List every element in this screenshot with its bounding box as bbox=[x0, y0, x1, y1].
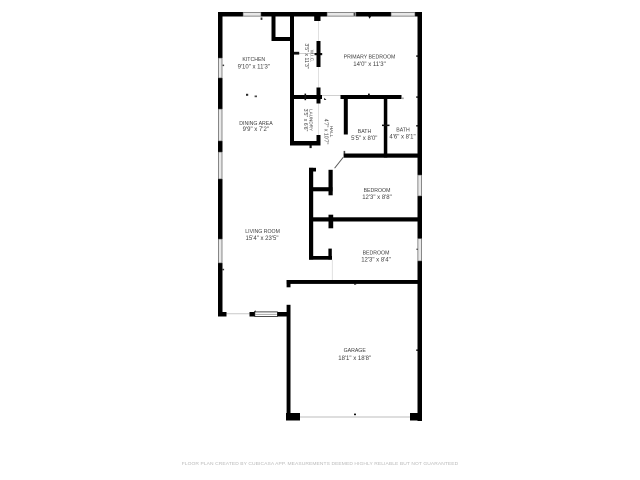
svg-text:9'10" x 11'3": 9'10" x 11'3" bbox=[238, 65, 270, 71]
svg-text:LAUNDRY: LAUNDRY bbox=[308, 109, 313, 131]
svg-text:18'1" x 18'8": 18'1" x 18'8" bbox=[338, 356, 371, 362]
svg-text:5'5" x 8'0": 5'5" x 8'0" bbox=[351, 136, 377, 142]
svg-text:12'3" x 8'8": 12'3" x 8'8" bbox=[362, 195, 392, 201]
svg-text:4'6" x 8'1": 4'6" x 8'1" bbox=[389, 135, 415, 141]
svg-text:LIVING ROOM: LIVING ROOM bbox=[245, 229, 280, 235]
svg-text:HALL: HALL bbox=[329, 126, 334, 138]
svg-text:3'5" x 6'6": 3'5" x 6'6" bbox=[302, 109, 308, 132]
svg-text:4'7" x 10'7": 4'7" x 10'7" bbox=[323, 119, 329, 145]
svg-text:BEDROOM: BEDROOM bbox=[363, 251, 390, 257]
svg-text:GARAGE: GARAGE bbox=[344, 348, 367, 354]
svg-text:KITCHEN: KITCHEN bbox=[242, 57, 265, 63]
svg-text:FLOOR PLAN CREATED BY CUBICASA: FLOOR PLAN CREATED BY CUBICASA APP. MEAS… bbox=[182, 461, 459, 467]
svg-text:DINING AREA: DINING AREA bbox=[239, 121, 273, 127]
svg-text:15'4" x 23'5": 15'4" x 23'5" bbox=[246, 236, 279, 242]
svg-text:14'0" x 11'3": 14'0" x 11'3" bbox=[353, 62, 385, 68]
svg-text:12'3" x 8'4": 12'3" x 8'4" bbox=[361, 257, 391, 263]
svg-text:BEDROOM: BEDROOM bbox=[364, 188, 391, 194]
svg-text:PRIMARY BEDROOM: PRIMARY BEDROOM bbox=[344, 55, 396, 61]
svg-text:BATH: BATH bbox=[396, 128, 410, 134]
svg-text:BATH: BATH bbox=[358, 129, 372, 135]
svg-text:3'5" x 11'3": 3'5" x 11'3" bbox=[303, 43, 309, 68]
svg-text:W.I.C.: W.I.C. bbox=[309, 50, 314, 63]
svg-text:9'9" x 7'2": 9'9" x 7'2" bbox=[243, 127, 269, 133]
